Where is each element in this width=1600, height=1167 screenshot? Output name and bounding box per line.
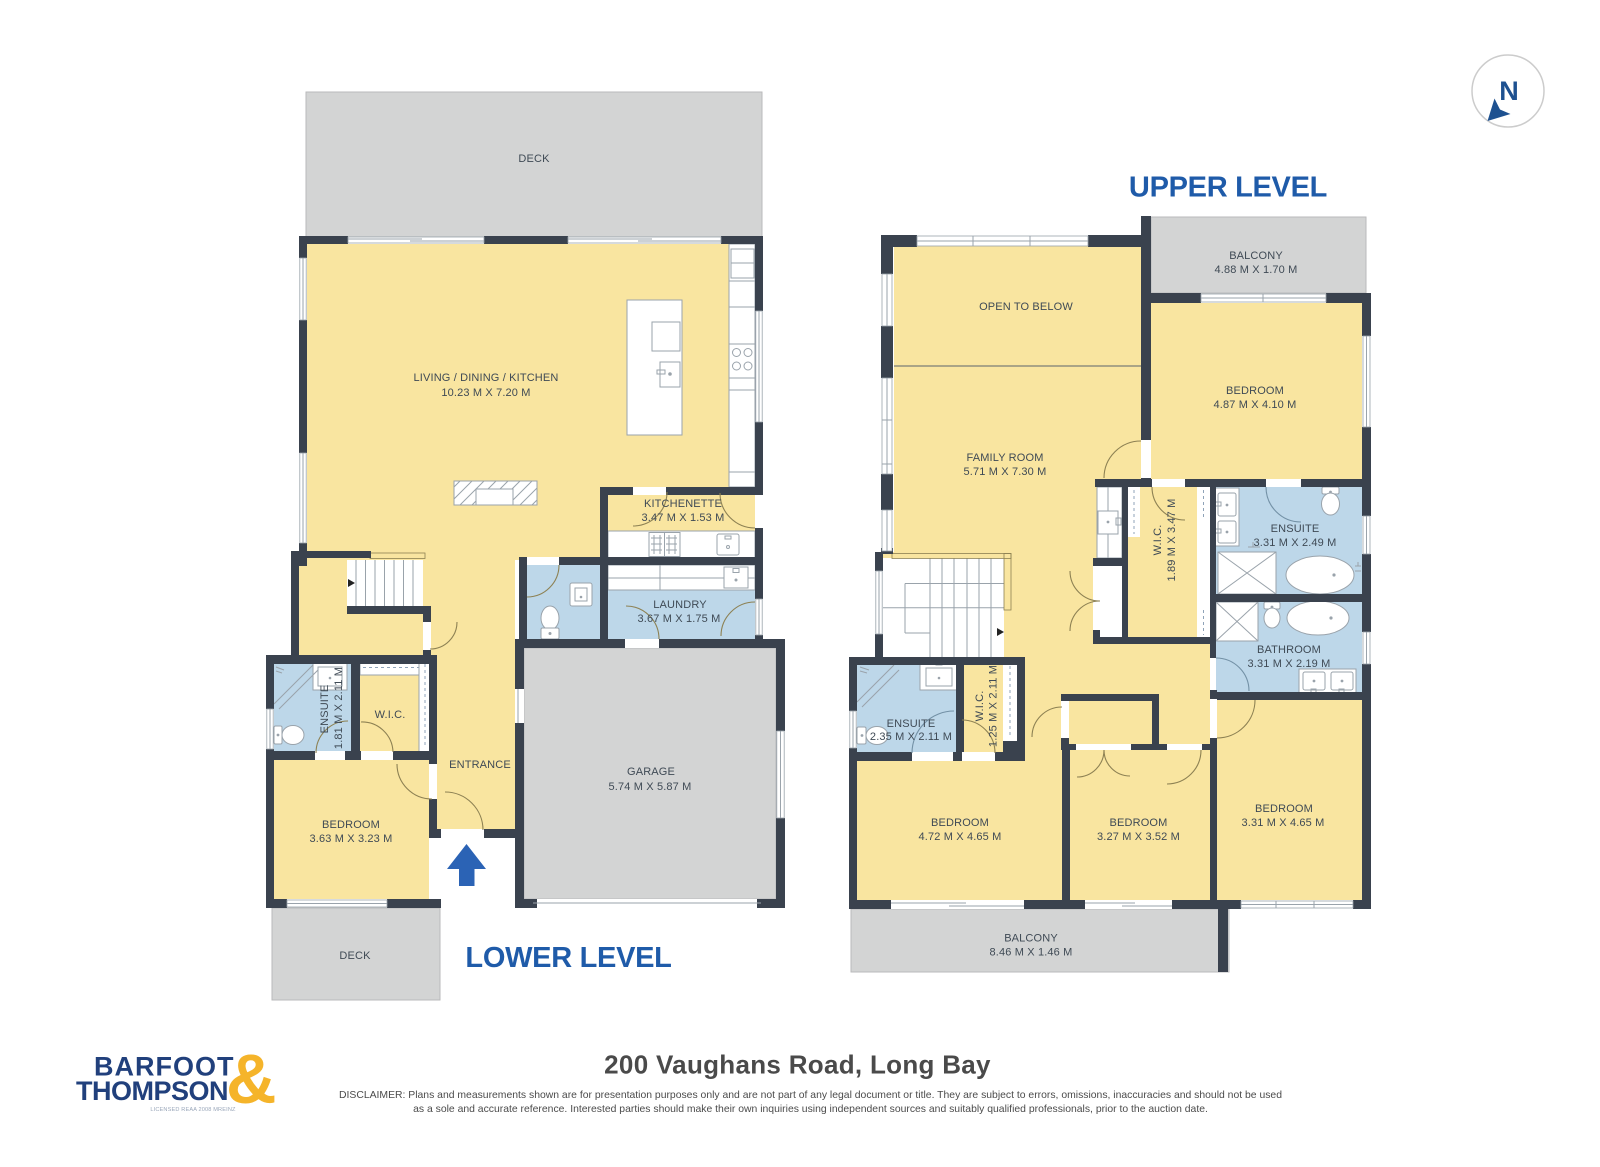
svg-text:200 Vaughans Road, Long Bay: 200 Vaughans Road, Long Bay — [604, 1050, 991, 1080]
svg-text:3.67 M X 1.75 M: 3.67 M X 1.75 M — [638, 613, 721, 625]
svg-text:5.74 M X 5.87 M: 5.74 M X 5.87 M — [609, 781, 692, 793]
svg-text:LOWER LEVEL: LOWER LEVEL — [465, 942, 671, 974]
svg-text:BEDROOM: BEDROOM — [1110, 817, 1168, 829]
svg-text:1.81 M X 2.11 M: 1.81 M X 2.11 M — [333, 667, 345, 749]
svg-text:3.31 M X 2.19 M: 3.31 M X 2.19 M — [1248, 658, 1331, 670]
svg-text:BALCONY: BALCONY — [1229, 250, 1283, 262]
svg-text:BATHROOM: BATHROOM — [1257, 644, 1321, 656]
svg-text:as a sole and accurate referen: as a sole and accurate reference. Intere… — [413, 1104, 1208, 1115]
svg-text:UPPER LEVEL: UPPER LEVEL — [1129, 172, 1327, 204]
svg-text:ENTRANCE: ENTRANCE — [449, 759, 511, 771]
svg-text:LIVING / DINING / KITCHEN: LIVING / DINING / KITCHEN — [414, 372, 559, 384]
svg-text:THOMPSON: THOMPSON — [76, 1076, 228, 1106]
svg-text:4.88 M X 1.70 M: 4.88 M X 1.70 M — [1215, 264, 1298, 276]
svg-text:LICENSED REAA 2008 MREINZ: LICENSED REAA 2008 MREINZ — [150, 1107, 236, 1113]
svg-text:3.47 M X 1.53 M: 3.47 M X 1.53 M — [642, 512, 725, 524]
svg-text:N: N — [1499, 76, 1519, 106]
svg-text:8.46 M X 1.46 M: 8.46 M X 1.46 M — [990, 947, 1073, 959]
svg-text:KITCHENETTE: KITCHENETTE — [644, 498, 722, 510]
svg-text:4.72 M X 4.65 M: 4.72 M X 4.65 M — [919, 831, 1002, 843]
svg-text:10.23 M X 7.20 M: 10.23 M X 7.20 M — [441, 387, 530, 399]
svg-text:BEDROOM: BEDROOM — [931, 817, 989, 829]
svg-text:DISCLAIMER: Plans and measurem: DISCLAIMER: Plans and measurements shown… — [339, 1090, 1282, 1101]
svg-text:BALCONY: BALCONY — [1004, 933, 1058, 945]
svg-text:W.I.C.: W.I.C. — [375, 709, 406, 721]
svg-text:4.87 M X 4.10 M: 4.87 M X 4.10 M — [1214, 399, 1297, 411]
svg-text:BEDROOM: BEDROOM — [1255, 803, 1313, 815]
svg-text:3.27 M X 3.52 M: 3.27 M X 3.52 M — [1097, 831, 1180, 843]
svg-text:3.63 M X 3.23 M: 3.63 M X 3.23 M — [310, 833, 393, 845]
svg-text:W.I.C.: W.I.C. — [974, 691, 986, 722]
svg-text:LAUNDRY: LAUNDRY — [653, 599, 707, 611]
svg-text:ENSUITE: ENSUITE — [319, 685, 331, 734]
svg-text:OPEN TO BELOW: OPEN TO BELOW — [979, 301, 1073, 313]
svg-text:BEDROOM: BEDROOM — [1226, 385, 1284, 397]
svg-text:DECK: DECK — [518, 153, 550, 165]
svg-text:DECK: DECK — [339, 950, 371, 962]
svg-text:ENSUITE: ENSUITE — [887, 718, 936, 730]
svg-text:W.I.C.: W.I.C. — [1152, 525, 1164, 556]
svg-text:FAMILY ROOM: FAMILY ROOM — [966, 452, 1043, 464]
svg-text:ENSUITE: ENSUITE — [1271, 523, 1320, 535]
svg-text:GARAGE: GARAGE — [627, 766, 675, 778]
svg-text:1.89 M X 3.47 M: 1.89 M X 3.47 M — [1166, 499, 1178, 582]
svg-text:BEDROOM: BEDROOM — [322, 819, 380, 831]
svg-text:2.35 M X 2.11 M: 2.35 M X 2.11 M — [870, 731, 952, 743]
svg-text:3.31 M X 2.49 M: 3.31 M X 2.49 M — [1254, 537, 1337, 549]
svg-text:3.31 M X 4.65 M: 3.31 M X 4.65 M — [1242, 817, 1325, 829]
svg-text:1.25 M X 2.11 M: 1.25 M X 2.11 M — [988, 665, 1000, 747]
svg-text:5.71 M X 7.30 M: 5.71 M X 7.30 M — [964, 466, 1047, 478]
